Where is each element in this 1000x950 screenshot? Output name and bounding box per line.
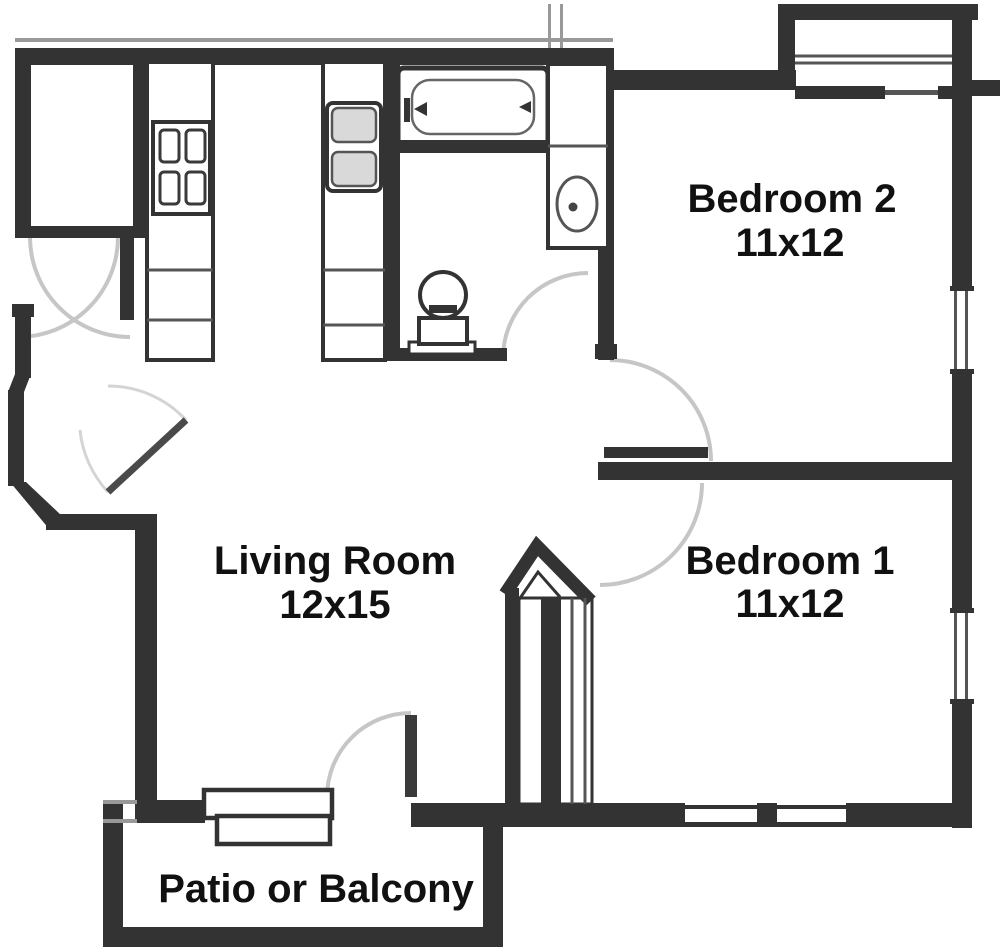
sink-drain-dot <box>569 203 578 212</box>
bedroom2-door-arc <box>610 360 711 461</box>
window-pane-line <box>965 290 968 370</box>
window-pane-line <box>965 612 968 700</box>
left-wall-lower <box>8 390 24 486</box>
bedroom2-label: Bedroom 2 <box>688 177 897 221</box>
patio-top-line <box>103 819 137 823</box>
toilet-icon <box>409 272 475 354</box>
closet-center-wall <box>541 598 561 804</box>
window-tick <box>950 369 974 374</box>
stove-burner <box>186 130 205 162</box>
bathroom-sink-icon <box>557 177 597 231</box>
patio-right-wall <box>483 823 503 947</box>
bedroom1-left-wall <box>505 588 519 807</box>
left-wall-jog <box>8 374 31 392</box>
bathroom <box>392 64 608 354</box>
tub-faucet <box>404 98 410 122</box>
window-pane-line <box>954 612 957 700</box>
bedroom-divider-stub <box>604 447 708 458</box>
stove-burner <box>160 172 179 204</box>
patio-door-arc <box>327 713 411 797</box>
kitchen <box>147 62 385 360</box>
bedroom1-dims: 11x12 <box>735 582 844 626</box>
bedroom1-label: Bedroom 1 <box>686 539 895 583</box>
living-room-left-wall <box>135 514 157 802</box>
patio-bottom-wall <box>103 927 503 947</box>
closet-door-track <box>938 86 952 99</box>
right-wall-stub <box>972 80 1000 96</box>
sink-basin <box>332 152 376 186</box>
bathroom-door-arc <box>503 273 588 358</box>
bedroom2-closet <box>795 56 952 99</box>
bedroom1-closet <box>519 598 592 804</box>
storage-room-bottom-wall <box>15 226 121 238</box>
entry-wall-stub <box>120 226 134 320</box>
bedroom-divider-wall <box>598 462 966 480</box>
floor-plan: Bedroom 2 11x12 Bedroom 1 11x12 Living R… <box>0 0 1000 950</box>
entry-door-leaf <box>108 420 186 492</box>
bedroom1-bottom-wall <box>411 803 685 823</box>
tub-bottom-wall <box>392 140 548 153</box>
left-wall-mid <box>15 312 31 378</box>
entry-door-arc <box>80 430 108 492</box>
top-wall <box>15 48 614 65</box>
toilet-seat-mark <box>429 305 457 313</box>
living-room-label: Living Room <box>214 539 456 583</box>
bedroom1-window-line <box>685 805 846 809</box>
window-tick <box>950 608 974 613</box>
kitchen-sink-icon <box>327 103 381 191</box>
window-tick <box>950 286 974 291</box>
bedroom2-window <box>950 290 974 370</box>
toilet-tank <box>419 318 467 344</box>
entry-bay-bottom-wall <box>46 514 138 530</box>
right-wall <box>952 4 972 828</box>
door-hinge-nub <box>595 344 617 359</box>
wall-artifact-line <box>560 4 563 50</box>
bedroom2-dims: 11x12 <box>735 221 844 265</box>
stove-burner <box>160 130 179 162</box>
window-pane-line <box>954 290 957 370</box>
patio-label: Patio or Balcony <box>158 867 474 911</box>
floor-plan-drawing: Bedroom 2 11x12 Bedroom 1 11x12 Living R… <box>0 0 1000 950</box>
living-room-dims: 12x15 <box>279 583 390 627</box>
patio-doors <box>204 715 417 844</box>
entry-door-arc <box>108 386 186 420</box>
stove-burner <box>186 172 205 204</box>
closet-door-track <box>795 86 885 99</box>
sliding-patio-door-panel <box>217 816 330 844</box>
patio-top-line <box>103 800 137 804</box>
wall-artifact-line <box>548 4 551 50</box>
left-wall-upper <box>15 48 31 238</box>
bathtub-icon <box>398 68 548 146</box>
window-tick <box>950 699 974 704</box>
closet-sliding-door <box>885 90 938 95</box>
sink-basin <box>332 108 376 142</box>
bedroom1-bottom-wall <box>846 803 966 823</box>
stove-icon <box>153 122 210 214</box>
closet-bump-top-wall <box>778 4 978 20</box>
bathroom-vanity <box>548 64 608 248</box>
living-room-bottom-wall <box>135 800 205 823</box>
top-thin-line <box>15 38 613 42</box>
storage-room-right-wall <box>133 62 147 238</box>
patio-door-leaf <box>405 715 417 797</box>
bedroom1-window <box>950 612 974 700</box>
bedroom2-top-wall <box>606 70 796 90</box>
